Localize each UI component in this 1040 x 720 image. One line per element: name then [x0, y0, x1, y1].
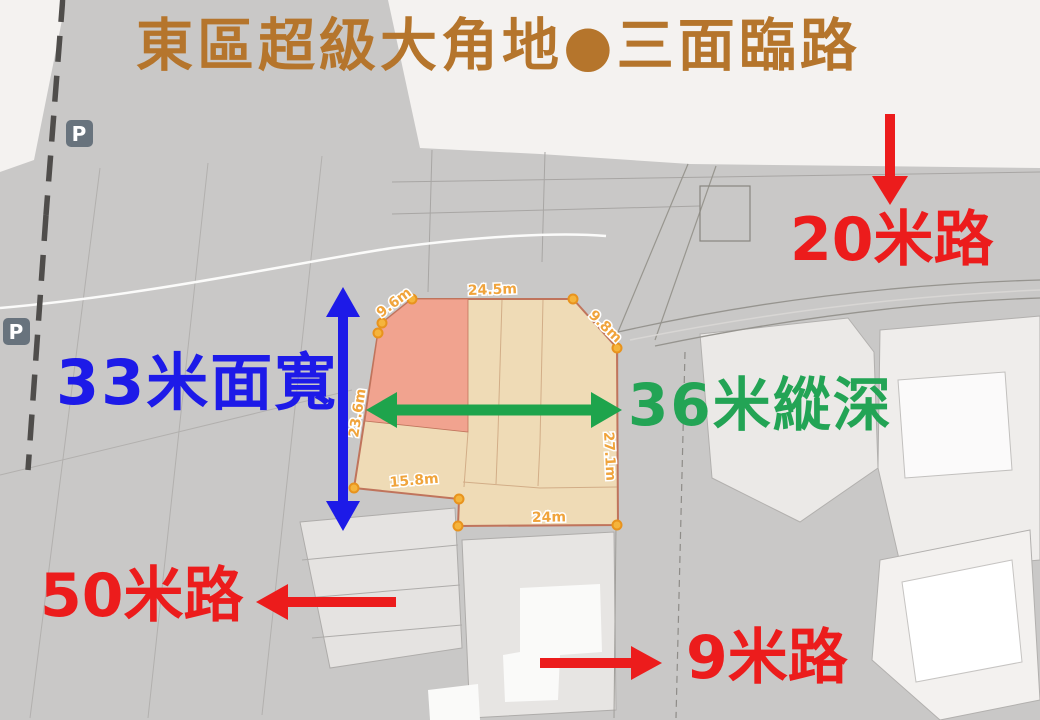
road-9m-label: 9米路 [686, 628, 848, 688]
frontage-label: 33米面寬 [56, 352, 338, 414]
measure-bottom: 24m [532, 509, 566, 526]
parking-letter: P [9, 320, 24, 344]
page-title: 東區超級大角地●三面臨路 [136, 18, 861, 75]
road-20m-label: 20米路 [790, 210, 994, 270]
listing-map-image: P P [0, 0, 1040, 720]
parking-letter: P [72, 122, 87, 146]
parking-icon: P [66, 120, 93, 147]
depth-label: 36米縱深 [628, 376, 893, 434]
measure-top: 24.5m [468, 281, 518, 299]
parking-icon: P [3, 318, 30, 345]
measure-right: 27.1m [600, 431, 619, 481]
road-50m-label: 50米路 [40, 566, 244, 626]
